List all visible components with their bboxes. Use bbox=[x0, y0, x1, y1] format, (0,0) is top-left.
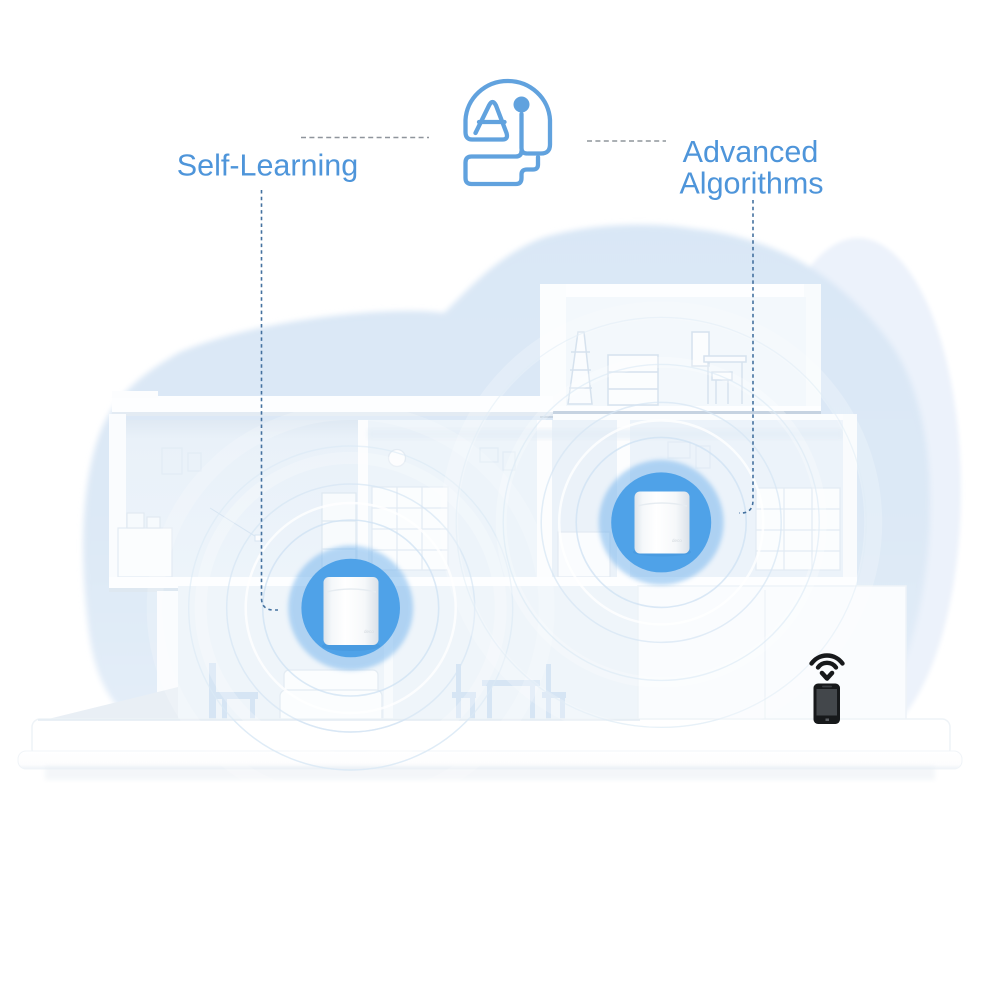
svg-text:Advanced: Advanced bbox=[683, 135, 819, 169]
svg-text:Algorithms: Algorithms bbox=[679, 167, 823, 201]
svg-text:Self-Learning: Self-Learning bbox=[177, 149, 358, 183]
svg-text:deco: deco bbox=[672, 538, 682, 543]
svg-text:deco: deco bbox=[364, 629, 374, 634]
